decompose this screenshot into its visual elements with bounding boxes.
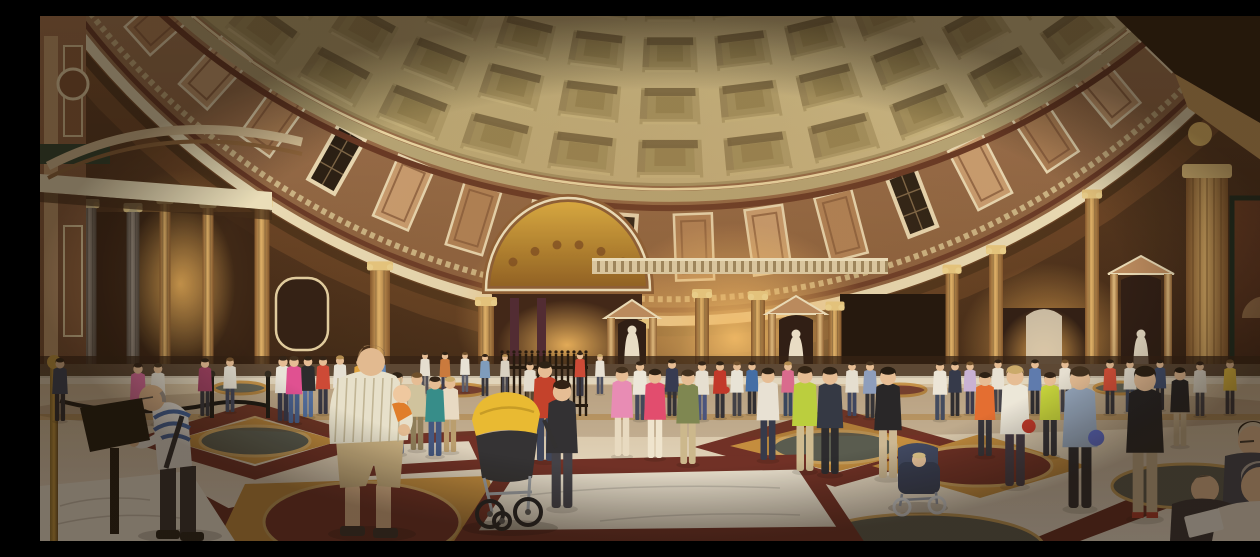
warm-cast bbox=[40, 16, 1260, 541]
pantheon-panorama-photo bbox=[40, 16, 1260, 541]
pantheon-scene-canvas bbox=[40, 16, 1260, 541]
